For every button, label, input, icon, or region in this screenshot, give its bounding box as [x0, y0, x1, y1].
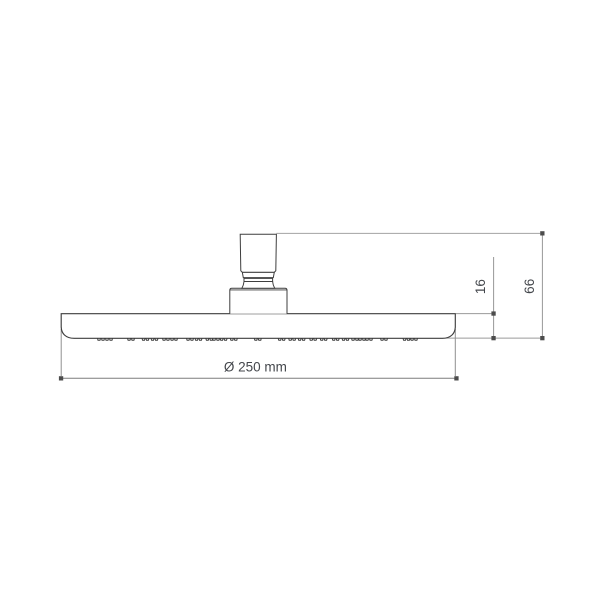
svg-text:16: 16: [473, 279, 488, 294]
svg-text:66: 66: [522, 279, 537, 294]
svg-text:Ø 250 mm: Ø 250 mm: [224, 360, 287, 375]
